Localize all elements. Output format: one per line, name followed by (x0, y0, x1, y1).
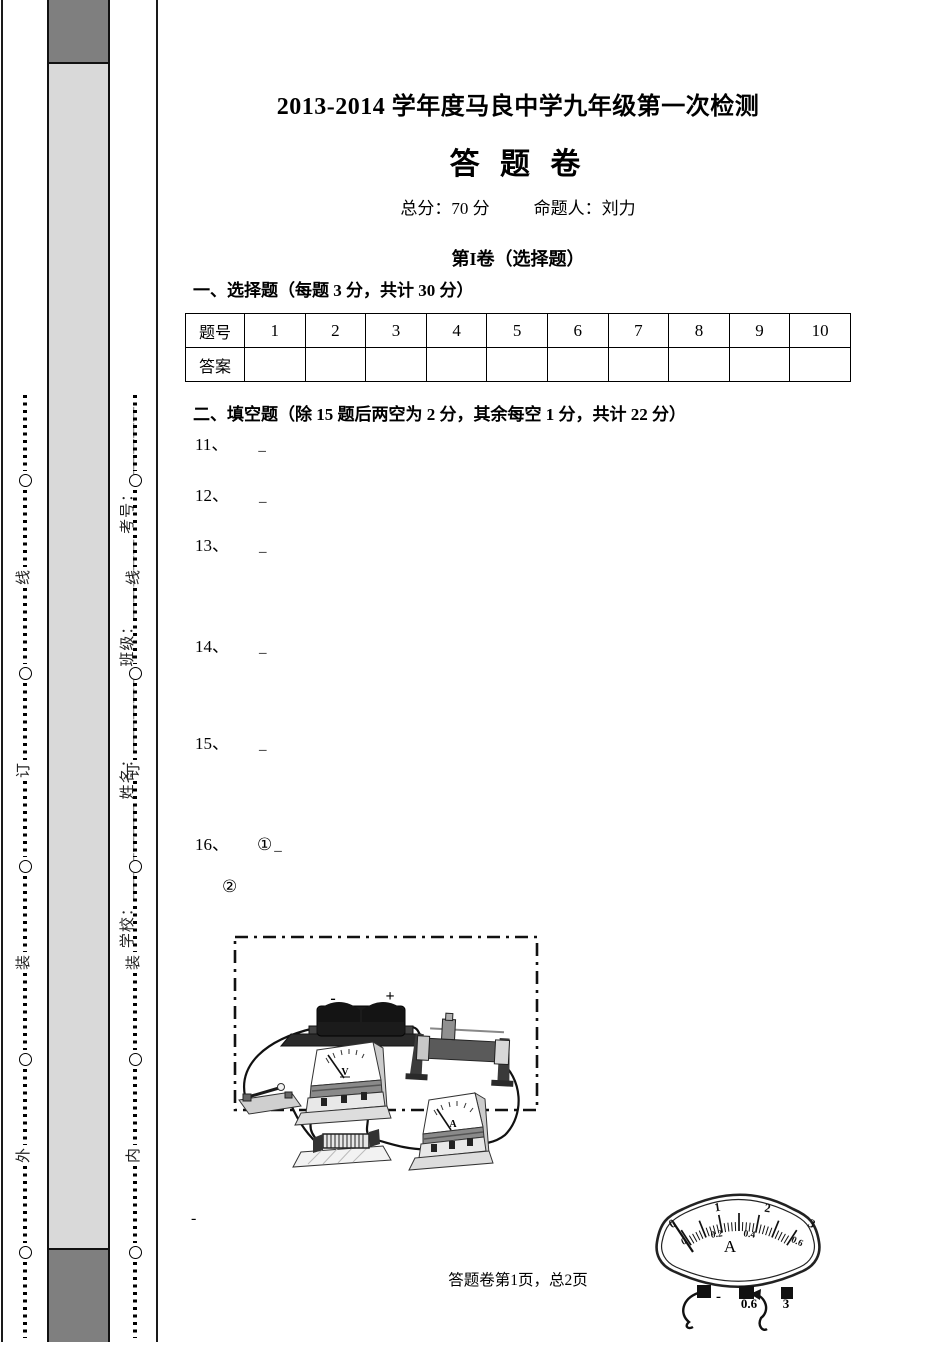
binding-line-char: 订 (126, 763, 143, 778)
voltmeter-dial-label: V (341, 1067, 349, 1078)
answer-blank: _ (259, 640, 267, 657)
binding-dotted-segment (133, 781, 136, 857)
binding-circle-mark (19, 860, 32, 873)
question-number-row: 题号 12345678910 (186, 314, 851, 348)
student-info-strip: 学校：＿＿＿＿＿＿ 姓名：＿＿＿＿＿ 班级：＿＿＿＿＿ 考号：＿＿＿＿＿ (47, 0, 110, 1342)
battery-plus-label: + (385, 988, 394, 1005)
stray-answer-mark: - (191, 1210, 196, 1228)
terminal-wire-left (683, 1293, 698, 1328)
question-number-cell: 8 (669, 314, 730, 348)
choice-section-heading: 一、选择题（每题 3 分，共计 30 分） (193, 276, 474, 301)
binding-circle-mark (19, 667, 32, 680)
binding-dotted-segment (23, 876, 26, 952)
binding-dotted-segment (133, 588, 136, 664)
question-number-cell: 2 (305, 314, 366, 348)
answer-cell (366, 348, 427, 382)
question-number-cell: 5 (487, 314, 548, 348)
binding-dotted-segment (23, 490, 26, 566)
sub-question-1-mark: ① (257, 835, 272, 855)
outer-binding-line: 线订装外 (17, 393, 33, 1340)
answer-cell (547, 348, 608, 382)
question-number-cell: 10 (790, 314, 851, 348)
battery-minus-label: - (330, 990, 335, 1007)
binding-line-char: 线 (16, 570, 33, 585)
binding-dotted-segment (133, 1166, 136, 1242)
choice-answer-table: 题号 12345678910 答案 (185, 313, 851, 382)
binding-dotted-segment (133, 876, 136, 952)
inner-scale-04: 0.4 (743, 1229, 756, 1241)
question-14: 14、_ (195, 632, 267, 657)
question-11: 11、_ (195, 430, 266, 455)
answer-label-cell: 答案 (186, 348, 245, 382)
question-number-cell: 6 (547, 314, 608, 348)
inner-scale-02: 0.2 (710, 1229, 723, 1241)
binding-dotted-segment (133, 1069, 136, 1145)
exam-meta: 总分：70 分 命题人：刘力 (185, 194, 851, 219)
sub-question-2-mark: ② (222, 877, 237, 897)
answer-row: 答案 (186, 348, 851, 382)
question-number-cell: 7 (608, 314, 669, 348)
binding-dotted-segment (23, 1069, 26, 1145)
binding-dotted-segment (23, 588, 26, 664)
binding-line-char: 线 (126, 570, 143, 585)
binding-dotted-segment (23, 781, 26, 857)
answer-blank: _ (258, 438, 266, 455)
binding-circle-mark (129, 474, 142, 487)
binding-dotted-segment (23, 683, 26, 759)
answer-blank: _ (259, 737, 267, 754)
circuit-ammeter: A (409, 1093, 493, 1170)
question-number-cell: 4 (426, 314, 487, 348)
question-number-cell: 3 (366, 314, 427, 348)
answer-blank: _ (259, 539, 267, 556)
binding-circle-mark (129, 667, 142, 680)
binding-dotted-segment (23, 973, 26, 1049)
answer-cell (729, 348, 790, 382)
question-15: 15、_ (195, 729, 267, 754)
inner-binding-line: 线订装内 (127, 393, 143, 1340)
binding-circle-mark (19, 1053, 32, 1066)
question-16: 16、①_ (195, 830, 282, 855)
question-number-cell: 9 (729, 314, 790, 348)
answer-cell (669, 348, 730, 382)
binding-circle-mark (19, 474, 32, 487)
answer-cell (608, 348, 669, 382)
sheet-name: 答 题 卷 (185, 139, 851, 183)
ammeter-dial-figure: 0 1 2 3 0 0.2 0.4 0.6 A - 0.6 3 (653, 1186, 825, 1340)
exam-setter: 命题人：刘力 (534, 194, 636, 219)
question-13: 13、_ (195, 531, 267, 556)
page-left-border (1, 0, 3, 1342)
ammeter-dial-drawing: 0 1 2 3 0 0.2 0.4 0.6 A - 0.6 3 (653, 1186, 825, 1340)
binding-dotted-segment (133, 490, 136, 566)
answer-blank: _ (274, 838, 282, 855)
binding-dotted-segment (23, 1166, 26, 1242)
binding-dotted-segment (133, 395, 136, 471)
terminal-minus-label: - (716, 1289, 721, 1305)
answer-cell (487, 348, 548, 382)
binding-circle-mark (129, 1053, 142, 1066)
binding-line-char: 订 (16, 763, 33, 778)
terminal-3-label: 3 (783, 1296, 790, 1311)
answer-cell (426, 348, 487, 382)
ammeter-terminals: - 0.6 3 (683, 1285, 793, 1330)
binding-line-char: 装 (126, 955, 143, 970)
binding-circle-mark (19, 1246, 32, 1259)
strip-top-cap (49, 0, 108, 64)
binding-line-char: 内 (126, 1148, 143, 1163)
voltmeter: V (295, 1042, 391, 1125)
binding-dotted-segment (133, 683, 136, 759)
answer-cell (245, 348, 306, 382)
question-12: 12、_ (195, 481, 267, 506)
battery-pack: - + (281, 988, 431, 1046)
circuit-drawing: - + (233, 930, 543, 1175)
dial-unit-label: A (724, 1237, 737, 1256)
total-score: 总分：70 分 (400, 194, 489, 219)
answer-blank: _ (259, 489, 267, 506)
fill-section-heading: 二、填空题（除 15 题后两空为 2 分，其余每空 1 分，共计 22 分） (193, 400, 686, 425)
circuit-experiment-figure: - + (233, 930, 543, 1175)
slide-rheostat (405, 1011, 517, 1087)
terminal-06-label: 0.6 (741, 1296, 758, 1311)
question-number-cell: 1 (245, 314, 306, 348)
answer-cell (790, 348, 851, 382)
circuit-ammeter-dial-label: A (449, 1119, 457, 1130)
binding-dotted-segment (133, 973, 136, 1049)
binding-circle-mark (129, 1246, 142, 1259)
binding-dotted-segment (23, 1262, 26, 1338)
binding-dotted-segment (23, 395, 26, 471)
question-number-label-cell: 题号 (186, 314, 245, 348)
binding-line-char: 外 (16, 1148, 33, 1163)
binding-dotted-segment (133, 1262, 136, 1338)
binding-area-divider (156, 0, 158, 1342)
strip-bottom-cap (49, 1248, 108, 1342)
binding-circle-mark (129, 860, 142, 873)
binding-line-char: 装 (16, 955, 33, 970)
answer-cell (305, 348, 366, 382)
part1-header: 第I卷（选择题） (185, 245, 851, 271)
page-title: 2013-2014 学年度马良中学九年级第一次检测 (185, 86, 851, 121)
